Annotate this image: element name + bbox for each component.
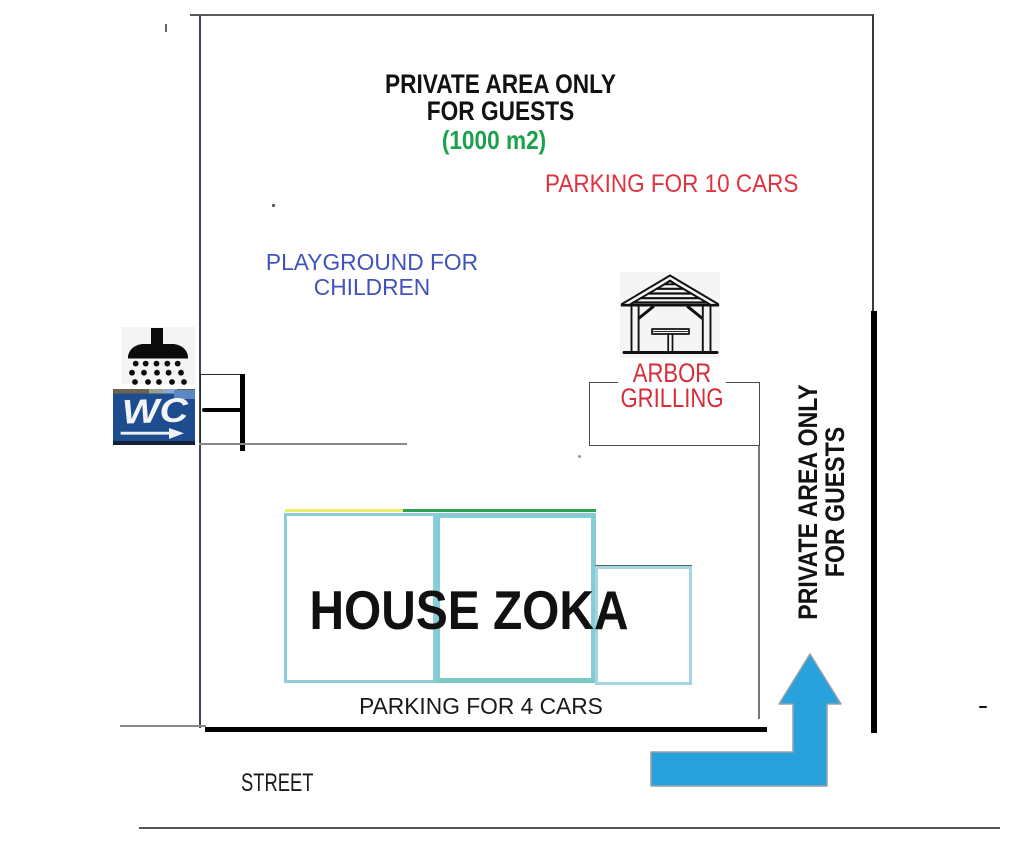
svg-text:WC: WC bbox=[121, 391, 189, 431]
